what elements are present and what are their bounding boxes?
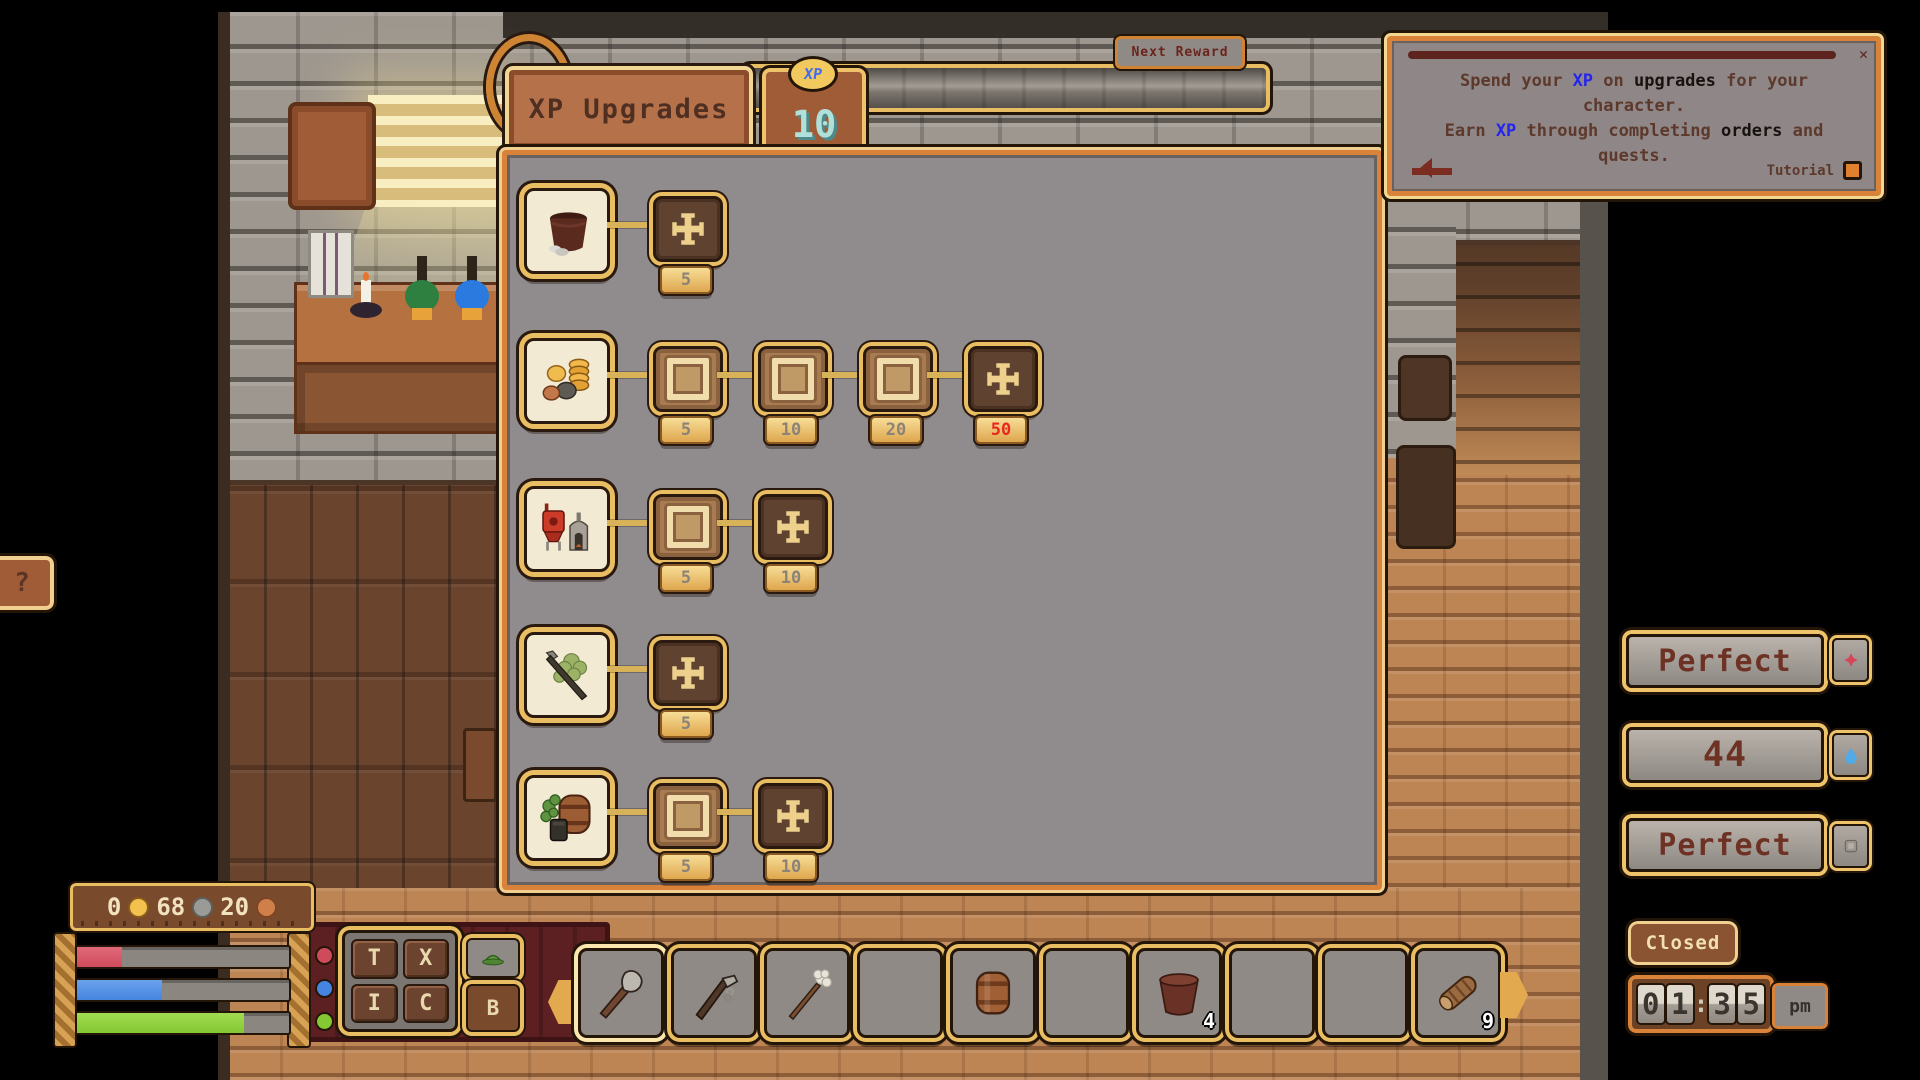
cost-value: 5: [681, 857, 691, 877]
text-part: on: [1593, 71, 1634, 91]
stamina-fill: [77, 1013, 244, 1033]
stamina-bar: [75, 1011, 291, 1035]
upgrade-node-brewing-2[interactable]: [758, 494, 828, 560]
connector: [607, 520, 653, 526]
heat-icon: [1842, 651, 1860, 669]
back-arrow-icon: [1412, 168, 1452, 175]
xp-coin-icon: XP: [788, 56, 838, 92]
cleanliness-status: Perfect: [1626, 818, 1824, 872]
hat-icon: [480, 948, 506, 968]
temperature-mini: [1832, 638, 1869, 682]
upgrade-icon-barrel: [524, 775, 610, 861]
plus-icon: [670, 655, 706, 691]
tutorial-tooltip: ✕ Spend your XP on upgrades for your cha…: [1387, 36, 1881, 196]
key-label: I: [368, 991, 381, 1016]
cost-value: 10: [781, 568, 801, 588]
hotbar-slot-6[interactable]: [1043, 948, 1129, 1038]
hotbar-slot-8[interactable]: [1229, 948, 1315, 1038]
upgrade-node-brewing-1[interactable]: [653, 494, 723, 560]
upgrade-node-farming-1[interactable]: [653, 640, 723, 706]
health-dot: [315, 946, 334, 965]
upgrade-cost: 5: [660, 710, 712, 738]
text-part: character.: [1583, 96, 1685, 116]
water-value: 44: [1703, 735, 1747, 775]
cost-value: 5: [681, 270, 691, 290]
key-label: B: [487, 996, 500, 1020]
xp-text: XP: [1496, 121, 1516, 141]
upgrade-node-barrel-1[interactable]: [653, 783, 723, 849]
xp-amount-badge: XP 10: [762, 68, 866, 158]
upgrade-cost: 20: [870, 416, 922, 444]
health-bar: [75, 945, 291, 969]
cost-value: 5: [681, 568, 691, 588]
upgrade-icon-cooking-pot: [524, 188, 610, 274]
text-part: Earn: [1445, 121, 1496, 141]
upgrade-icon-farming: [524, 632, 610, 718]
blue-bottle: [454, 256, 490, 326]
cost-value: 20: [886, 420, 906, 440]
window-shutter: [288, 102, 376, 210]
mug-icon: [1842, 837, 1860, 855]
upgrade-node-barrel-2[interactable]: [758, 783, 828, 849]
menu-grid-c-button[interactable]: C: [403, 984, 450, 1024]
xp-coin-label: XP: [803, 65, 824, 83]
menu-grid-i-button[interactable]: I: [351, 984, 398, 1024]
cooking-pot-icon: [537, 201, 597, 261]
upgrade-cost: 5: [660, 266, 712, 294]
mop-icon: [778, 964, 836, 1022]
shovel-icon: [592, 964, 650, 1022]
water-drop-icon: [1842, 746, 1860, 764]
energy-fill: [77, 980, 162, 1000]
clock-meridiem: pm: [1772, 983, 1828, 1029]
wallet-ticks: [81, 921, 303, 926]
brewing-icon: [537, 499, 597, 559]
bars-left-post: [53, 932, 77, 1048]
plus-icon: [775, 798, 811, 834]
wallet: 0 68 20: [70, 883, 314, 931]
next-reward-badge: Next Reward: [1115, 36, 1245, 69]
text-part: for your: [1716, 71, 1808, 91]
shop-state-label: Closed: [1646, 932, 1721, 954]
barrel-icon: [964, 964, 1022, 1022]
clock-colon: :: [1694, 990, 1708, 1018]
connector: [607, 372, 653, 378]
cost-value: 5: [681, 714, 691, 734]
log-icon: [1429, 964, 1487, 1022]
clock-digit: 5: [1738, 985, 1764, 1023]
water-mini: [1832, 733, 1869, 777]
connector: [822, 372, 863, 378]
silver-amount: 68: [156, 893, 185, 921]
connector: [927, 372, 968, 378]
upgrade-node-coins-4[interactable]: [968, 346, 1038, 412]
hotbar-slot-4[interactable]: [857, 948, 943, 1038]
key-label: X: [419, 946, 432, 971]
plus-icon: [670, 211, 706, 247]
menu-stand: [308, 230, 354, 298]
stamina-dot: [315, 1012, 334, 1031]
connector: [717, 520, 758, 526]
emphasis-text: orders: [1721, 121, 1782, 141]
help-button[interactable]: ?: [0, 556, 54, 610]
menu-grid: T X I C: [342, 930, 458, 1032]
text-part: and: [1782, 121, 1823, 141]
copper-coin-icon: [256, 897, 277, 918]
upgrade-cost: 10: [765, 564, 817, 592]
cost-value: 10: [781, 857, 801, 877]
stair-railing-lower: [1396, 445, 1456, 549]
connector: [607, 666, 653, 672]
health-fill: [77, 947, 122, 967]
upgrade-node-coins-1[interactable]: [653, 346, 723, 412]
gold-coin-icon: [128, 897, 149, 918]
upgrade-icon-brewing: [524, 486, 610, 572]
right-wall-edge: [1580, 158, 1608, 1080]
hotbar-slot-5[interactable]: [950, 948, 1036, 1038]
cleanliness-value: Perfect: [1658, 828, 1791, 863]
coins-icon: [537, 351, 597, 411]
upgrade-node-coins-2[interactable]: [758, 346, 828, 412]
bar-counter-front: [294, 362, 508, 434]
cost-value: 50: [991, 420, 1011, 440]
connector: [717, 372, 758, 378]
green-bottle: [404, 256, 440, 326]
gold-amount: 0: [107, 893, 121, 921]
cleanliness-mini: [1832, 824, 1869, 868]
text-part: quests.: [1598, 146, 1670, 166]
key-label: C: [419, 991, 432, 1016]
plus-icon: [985, 361, 1021, 397]
upgrade-cost: 10: [765, 853, 817, 881]
energy-dot: [315, 979, 334, 998]
menu-grid-t-button[interactable]: T: [351, 939, 398, 979]
hat-button[interactable]: [466, 938, 520, 978]
close-icon[interactable]: ✕: [1859, 45, 1868, 63]
tab-label: XP Upgrades: [529, 94, 730, 125]
temperature-status: Perfect: [1626, 634, 1824, 688]
upgrade-icon-coins: [524, 338, 610, 424]
tooltip-divider: [1408, 51, 1836, 59]
connector: [607, 222, 653, 228]
energy-bar: [75, 978, 291, 1002]
tutorial-label: Tutorial: [1767, 163, 1834, 179]
upgrade-cost: 5: [660, 416, 712, 444]
hotbar-slot-2[interactable]: [671, 948, 757, 1038]
hotbar-slot-1[interactable]: [578, 948, 664, 1038]
emphasis-text: upgrades: [1634, 71, 1716, 91]
window: [368, 95, 504, 207]
tutorial-dot-icon[interactable]: [1843, 161, 1862, 180]
item-qty: 4: [1203, 1009, 1215, 1033]
connector: [717, 809, 758, 815]
upgrade-node-coins-3[interactable]: [863, 346, 933, 412]
water-status: 44: [1626, 727, 1824, 783]
clock-digit: 0: [1638, 985, 1664, 1023]
candle: [350, 276, 382, 322]
hotbar-slot-3[interactable]: [764, 948, 850, 1038]
menu-grid-x-button[interactable]: X: [403, 939, 450, 979]
plus-icon: [775, 509, 811, 545]
farming-icon: [537, 645, 597, 705]
meridiem-label: pm: [1789, 996, 1811, 1017]
cost-value: 10: [781, 420, 801, 440]
b-button[interactable]: B: [466, 984, 520, 1032]
hotbar-slot-9[interactable]: [1322, 948, 1408, 1038]
temperature-value: Perfect: [1658, 644, 1791, 679]
tutorial-text: Spend your XP on upgrades for your chara…: [1392, 69, 1876, 169]
hotbar-slot-7[interactable]: 4: [1136, 948, 1222, 1038]
item-qty: 9: [1482, 1009, 1494, 1033]
stool: [463, 728, 497, 802]
help-label: ?: [14, 568, 30, 598]
upgrade-cost-alert: 50: [975, 416, 1027, 444]
clock-digit: 3: [1709, 985, 1735, 1023]
text-part: through completing: [1516, 121, 1721, 141]
upgrade-cost: 5: [660, 564, 712, 592]
next-reward-label: Next Reward: [1131, 45, 1228, 60]
clock: 0 1 : 3 5: [1628, 975, 1774, 1033]
pot-icon: [1150, 964, 1208, 1022]
connector: [607, 809, 653, 815]
text-part: Spend your: [1460, 71, 1573, 91]
shop-state-sign[interactable]: Closed: [1628, 921, 1738, 965]
upgrade-cost: 5: [660, 853, 712, 881]
tab-xp-upgrades[interactable]: XP Upgrades: [505, 66, 753, 152]
key-label: T: [368, 946, 381, 971]
stair-railing: [1398, 355, 1452, 421]
silver-coin-icon: [192, 897, 213, 918]
copper-amount: 20: [220, 893, 249, 921]
clock-digit: 1: [1667, 985, 1693, 1023]
game-screen: Next Reward XP Upgrades XP 10: [0, 0, 1920, 1080]
upgrade-panel: 5 5 10 20: [502, 150, 1382, 890]
cost-value: 5: [681, 420, 691, 440]
xp-text: XP: [1573, 71, 1593, 91]
hotbar-slot-10[interactable]: 9: [1415, 948, 1501, 1038]
hoe-icon: [685, 964, 743, 1022]
barrel-hops-icon: [537, 788, 597, 848]
upgrade-cost: 10: [765, 416, 817, 444]
xp-amount: 10: [792, 96, 837, 154]
upgrade-node-cooking-1[interactable]: [653, 196, 723, 262]
